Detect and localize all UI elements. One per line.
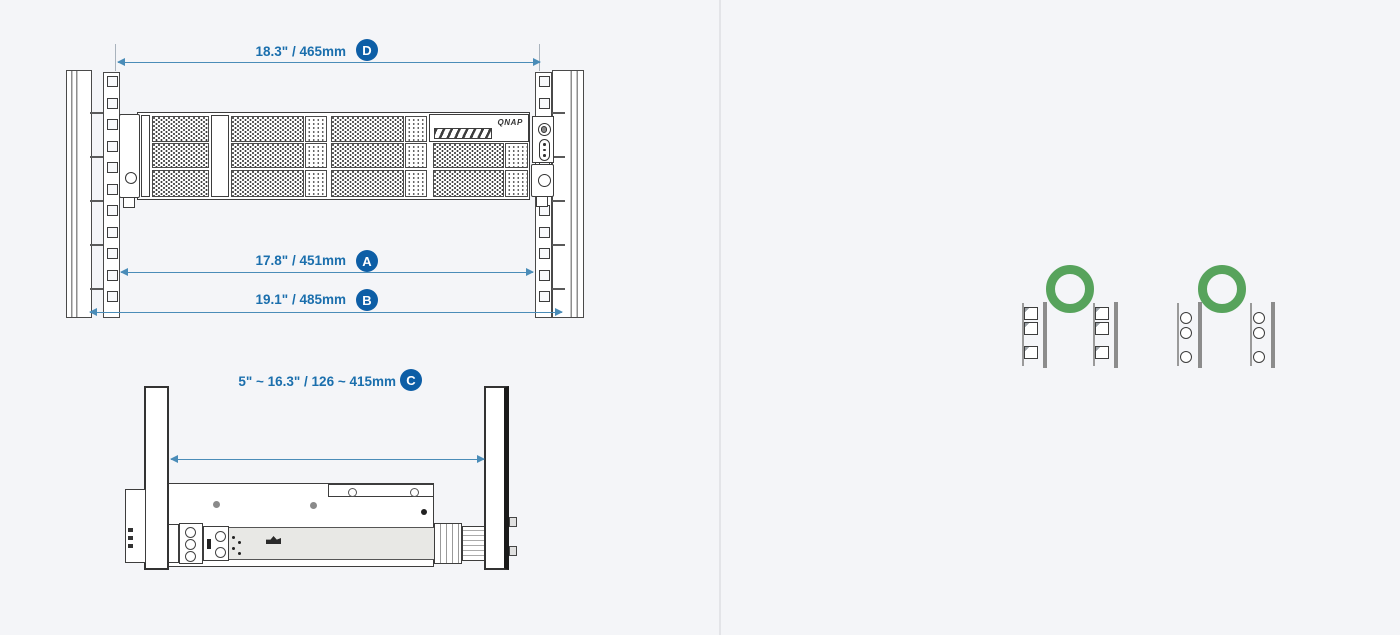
square-hole <box>1024 322 1038 335</box>
round-hole <box>1253 351 1265 363</box>
rail-square-hole <box>107 227 118 238</box>
rail-square-hole <box>539 248 550 259</box>
bezel-detail <box>128 536 133 540</box>
rack-unit-tick <box>90 112 103 114</box>
front-divider-bar <box>211 115 229 197</box>
rear-post-tab <box>509 517 517 527</box>
rail-square-hole <box>107 119 118 130</box>
rail-rivet <box>238 552 241 555</box>
right-ear-tab <box>536 196 548 207</box>
right-ear-screw-hole <box>538 174 551 187</box>
dim-a-badge: A <box>356 250 378 272</box>
dim-b-badge: B <box>356 289 378 311</box>
bracket-hole <box>215 531 226 542</box>
dim-d-extension-left <box>115 44 116 71</box>
control-strip <box>532 116 554 163</box>
rack-unit-tick <box>90 244 103 246</box>
rail-square-hole <box>539 291 550 302</box>
drive-tray-mesh <box>331 170 404 197</box>
front-handle-bar-left <box>141 115 150 197</box>
screw-icon <box>410 488 419 497</box>
vent-hatch-stripes <box>434 128 492 139</box>
rack-unit-tick <box>90 288 103 290</box>
screw-icon <box>310 502 317 509</box>
square-hole <box>1024 346 1038 359</box>
rail-square-hole <box>107 98 118 109</box>
round-hole <box>1180 312 1192 324</box>
bracket-hole <box>185 551 196 562</box>
dim-b-arrow <box>90 312 562 313</box>
round-hole-post-left <box>1177 302 1203 368</box>
post-frame <box>1177 303 1179 366</box>
right-mounting-ear <box>531 164 554 197</box>
bezel-detail <box>128 528 133 532</box>
square-hole <box>1095 307 1109 320</box>
rail-square-hole <box>107 291 118 302</box>
dim-a-arrow <box>121 272 533 273</box>
left-ear-screw-hole <box>125 172 137 184</box>
rail-kit-compatibility-diagram: 18.3" / 465mm D QNAP 17.8" <box>0 0 1400 635</box>
drive-tray-latch <box>405 143 427 168</box>
rail-square-hole <box>107 205 118 216</box>
led-indicator-icon <box>539 139 550 161</box>
square-hole-post-left <box>1022 302 1048 368</box>
vent-mesh-panel <box>152 170 209 197</box>
side-rack-post-rear <box>484 386 509 570</box>
ok-circle-icon <box>1046 265 1094 313</box>
rail-square-hole <box>107 270 118 281</box>
section-divider <box>719 0 721 635</box>
drive-tray-latch <box>405 170 427 197</box>
rail-square-hole <box>539 270 550 281</box>
rail-square-hole <box>107 248 118 259</box>
square-hole <box>1024 307 1038 320</box>
post-frame <box>1250 303 1252 366</box>
drive-tray-mesh <box>231 143 304 168</box>
rack-unit-tick <box>552 200 565 202</box>
drive-tray-mesh <box>331 143 404 168</box>
post-frame <box>1043 302 1047 368</box>
drive-tray-latch <box>505 170 528 197</box>
lock-pin <box>207 539 211 549</box>
bracket-hole <box>185 539 196 550</box>
drive-tray-latch <box>305 170 327 197</box>
rack-mounting-rail-left <box>103 72 120 318</box>
dim-c-label: 5" ~ 16.3" / 126 ~ 415mm <box>210 374 396 389</box>
rack-outer-post-left <box>66 70 92 318</box>
left-mounting-ear <box>119 114 140 198</box>
dim-c-arrow <box>171 459 484 460</box>
drive-tray-mesh <box>231 170 304 197</box>
dim-b-label: 19.1" / 485mm <box>190 292 346 307</box>
vent-mesh-panel <box>152 143 209 168</box>
qnap-logo: QNAP <box>497 118 523 127</box>
drive-tray-latch <box>505 143 528 168</box>
post-frame <box>1198 302 1202 368</box>
drive-tray-latch <box>405 116 427 142</box>
rack-unit-tick <box>552 112 565 114</box>
rail-square-hole <box>539 98 550 109</box>
drive-tray-latch <box>305 116 327 142</box>
rail-square-hole <box>539 76 550 87</box>
dim-c-badge: C <box>400 369 422 391</box>
rear-post-tab <box>509 546 517 556</box>
round-hole <box>1180 351 1192 363</box>
screw-icon <box>421 509 427 515</box>
round-hole <box>1180 327 1192 339</box>
square-hole <box>1095 322 1109 335</box>
logo-panel: QNAP <box>429 114 529 142</box>
screw-icon <box>348 488 357 497</box>
drive-tray-mesh <box>231 116 304 142</box>
rack-outer-post-right <box>552 70 584 318</box>
side-rack-post-front <box>144 386 169 570</box>
dim-d-label: 18.3" / 465mm <box>190 44 346 59</box>
round-hole <box>1253 327 1265 339</box>
rail-rivet <box>232 547 235 550</box>
power-button-icon <box>538 123 551 136</box>
dim-a-label: 17.8" / 451mm <box>190 253 346 268</box>
drive-tray-mesh <box>433 143 504 168</box>
rail-square-hole <box>539 227 550 238</box>
rail-square-hole <box>107 76 118 87</box>
bracket-hole <box>185 527 196 538</box>
round-hole-post-right <box>1250 302 1276 368</box>
round-hole <box>1253 312 1265 324</box>
bezel-detail <box>128 544 133 548</box>
rail-square-hole <box>107 162 118 173</box>
rail-rivet <box>232 536 235 539</box>
rail-rivet <box>238 541 241 544</box>
drive-tray-mesh <box>433 170 504 197</box>
rack-unit-tick <box>552 288 565 290</box>
rail-lock-bracket <box>203 526 229 561</box>
square-hole <box>1095 346 1109 359</box>
screw-icon <box>213 501 220 508</box>
drive-tray-latch <box>305 143 327 168</box>
rail-rear-bracket <box>434 523 462 564</box>
post-frame <box>1114 302 1118 368</box>
vent-mesh-panel <box>152 116 209 142</box>
post-frame <box>1271 302 1275 368</box>
front-bezel-side <box>125 489 146 563</box>
rack-unit-tick <box>90 156 103 158</box>
rack-unit-tick <box>90 200 103 202</box>
rail-square-hole <box>107 141 118 152</box>
dim-d-arrow <box>118 62 540 63</box>
rail-square-hole <box>107 184 118 195</box>
left-ear-tab <box>123 197 135 208</box>
bracket-hole <box>215 547 226 558</box>
rail-front-bracket <box>179 523 203 564</box>
drive-tray-mesh <box>331 116 404 142</box>
ok-circle-icon <box>1198 265 1246 313</box>
rack-unit-tick <box>552 244 565 246</box>
dim-d-badge: D <box>356 39 378 61</box>
square-hole-post-right <box>1093 302 1119 368</box>
